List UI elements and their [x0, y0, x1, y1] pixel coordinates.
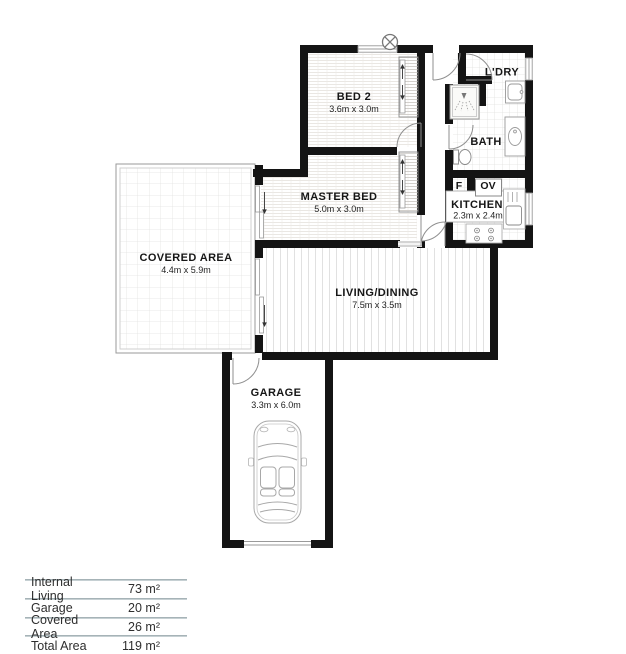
living-dining-label: LIVING/DINING — [335, 287, 418, 299]
garage-door-swing — [233, 358, 259, 384]
covered-area-label: COVERED AREA — [139, 252, 232, 264]
car-symbol — [249, 421, 307, 523]
wardrobe-symbol-bed2 — [399, 57, 418, 117]
area-row-label: Total Area — [25, 639, 98, 653]
area-row-value: 26 m² — [98, 620, 187, 634]
kitchen-label: KITCHEN — [451, 199, 503, 211]
window-symbol-kitchen — [526, 193, 532, 225]
floor-plan-drawing: BED 2 3.6m x 3.0m MASTER BED 5.0m x 3.0m… — [0, 0, 626, 575]
shower-symbol — [450, 85, 479, 119]
area-row-value: 119 m² — [98, 639, 187, 653]
master-bed-dims: 5.0m x 3.0m — [314, 204, 364, 214]
kitchen-sink-symbol — [504, 189, 526, 229]
bed2-dims: 3.6m x 3.0m — [329, 104, 379, 114]
living-dining-dims: 7.5m x 3.5m — [352, 300, 402, 310]
wardrobe-symbol-master — [399, 152, 418, 212]
page: { "plan": { "rooms": { "bed2": {"name": … — [0, 0, 626, 650]
garage-label: GARAGE — [251, 387, 302, 399]
master-door-swing — [421, 215, 447, 241]
vanity-basin-symbol — [505, 117, 525, 156]
kitchen-dims: 2.3m x 2.4m — [453, 211, 503, 221]
area-row-value: 20 m² — [98, 601, 187, 615]
window-symbol-laundry — [526, 58, 532, 80]
table-row: Total Area 119 m² — [25, 637, 187, 654]
fridge-label: F — [456, 180, 463, 192]
area-row-label: Internal Living — [25, 575, 98, 603]
opening-symbol-hall — [398, 241, 422, 247]
table-row: Internal Living 73 m² — [25, 581, 187, 598]
laundry-tub-symbol — [506, 81, 526, 103]
toilet-symbol — [454, 150, 472, 165]
area-summary-table: Internal Living 73 m² Garage 20 m² Cover… — [25, 579, 187, 654]
cooktop-symbol — [466, 224, 502, 243]
bath-label: BATH — [470, 136, 501, 148]
area-row-value: 73 m² — [98, 582, 187, 596]
garage-roller-door — [244, 542, 311, 546]
laundry-label: L'DRY — [485, 67, 519, 79]
bed2-label: BED 2 — [337, 91, 371, 103]
covered-area-dims: 4.4m x 5.9m — [161, 265, 211, 275]
oven-label: OV — [480, 180, 495, 192]
floor-plan: BED 2 3.6m x 3.0m MASTER BED 5.0m x 3.0m… — [0, 0, 626, 580]
table-row: Covered Area 26 m² — [25, 619, 187, 636]
light-fitting-icon — [383, 35, 398, 50]
area-row-label: Covered Area — [25, 613, 98, 641]
garage-dims: 3.3m x 6.0m — [251, 400, 301, 410]
master-floor-left — [261, 177, 308, 240]
master-bed-label: MASTER BED — [301, 191, 378, 203]
